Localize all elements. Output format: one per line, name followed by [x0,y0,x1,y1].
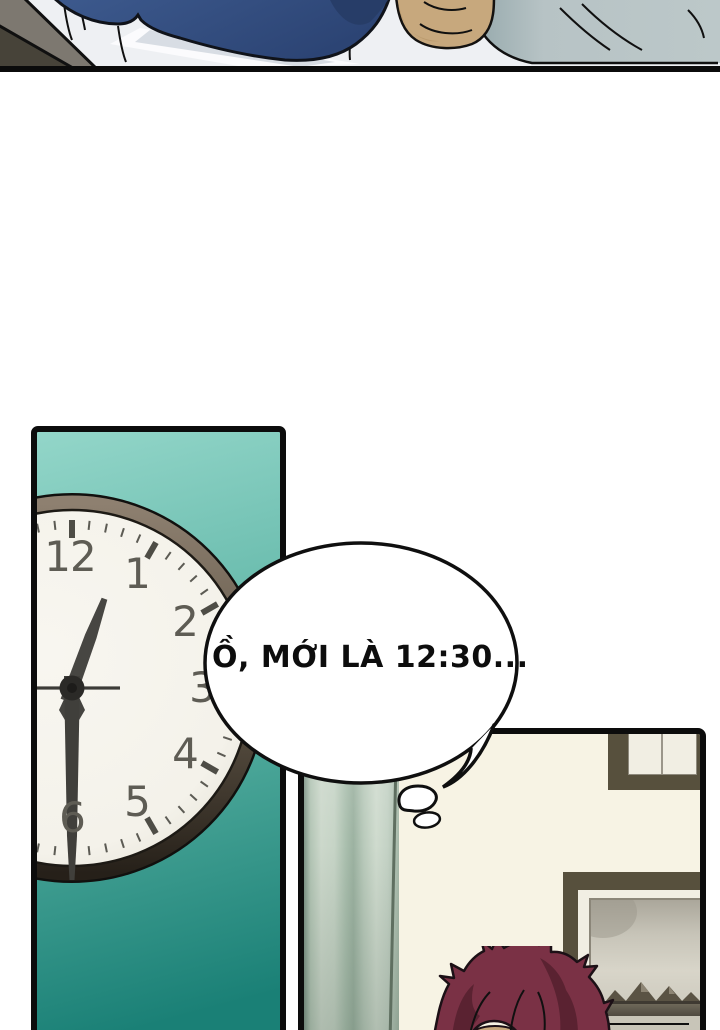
bubble-trail-blob-1 [399,786,436,811]
picture-top [628,734,697,775]
character-hair [424,946,624,1030]
bed-scene-art [0,0,720,72]
clock-numeral-2: 2 [172,601,198,643]
panel-border-bottom [0,66,720,72]
picture-frame-top [608,734,700,790]
panel-bed-scene [0,0,720,72]
clock-numeral-5: 5 [124,781,150,823]
clock-numeral-1: 1 [124,553,150,595]
clock-numeral-6: 6 [59,797,85,839]
bubble-trail-blob-2 [413,811,441,829]
speech-bubble: Ồ, MỚI LÀ 12:30... [195,528,525,840]
speech-bubble-art [195,528,525,840]
comic-page: 12 1 2 3 4 5 6 [0,0,720,1030]
bubble-text: Ồ, MỚI LÀ 12:30... [212,634,512,682]
clock-numeral-12: 12 [44,536,95,578]
picture-divider [661,734,663,774]
pillow [468,0,720,63]
clock-numeral-4: 4 [172,733,198,775]
